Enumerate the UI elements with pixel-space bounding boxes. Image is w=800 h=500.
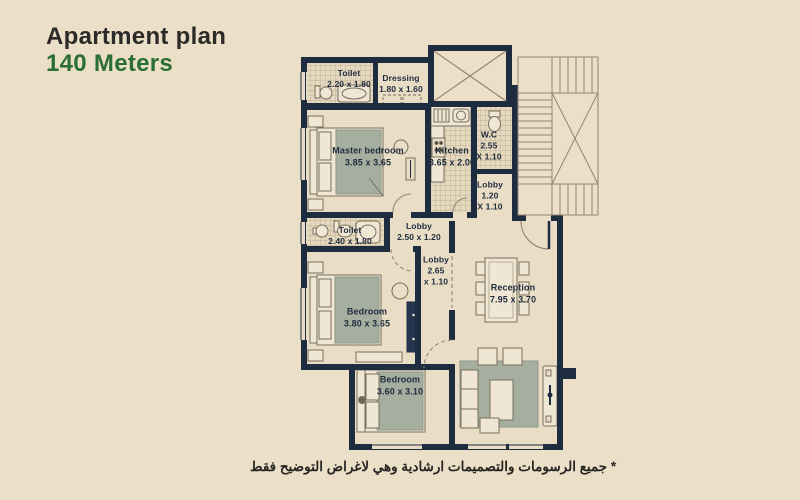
apartment-plan-page: Apartment plan 140 Meters Toilet2.20 x 1… — [0, 0, 800, 500]
room-label-master-bedroom: Master bedroom3.85 x 3.65 — [332, 145, 403, 168]
room-label-lobby-corridor: Lobby2.65x 1.10 — [423, 254, 449, 287]
elevator-icon — [434, 51, 506, 101]
room-label-wc: W.C2.55X 1.10 — [476, 129, 501, 162]
room-label-bedroom-2: Bedroom3.80 x 3.65 — [344, 306, 390, 329]
room-label-reception: Reception7.95 x 3.70 — [490, 282, 536, 305]
room-label-lobby-mid: Lobby2.50 x 1.20 — [397, 221, 441, 243]
room-label-kitchen: Kitchen3.65 x 2.00 — [429, 145, 475, 168]
page-header: Apartment plan 140 Meters — [46, 24, 226, 78]
room-label-dressing: Dressing1.80 x 1.60 — [379, 73, 423, 95]
room-label-bedroom-3: Bedroom3.60 x 3.10 — [377, 374, 423, 397]
disclaimer-note: * جميع الرسومات والتصميمات ارشادية وهي ل… — [250, 459, 770, 475]
staircase-icon — [518, 57, 598, 215]
page-subtitle: 140 Meters — [46, 51, 226, 78]
wc-fixtures — [489, 111, 501, 132]
room-label-toilet-1: Toilet2.20 x 1.80 — [327, 68, 371, 90]
room-label-lobby-entry: Lobby1.20X 1.10 — [477, 179, 503, 212]
room-label-toilet-2: Toilet2.40 x 1.80 — [328, 225, 372, 247]
page-title: Apartment plan — [46, 24, 226, 51]
